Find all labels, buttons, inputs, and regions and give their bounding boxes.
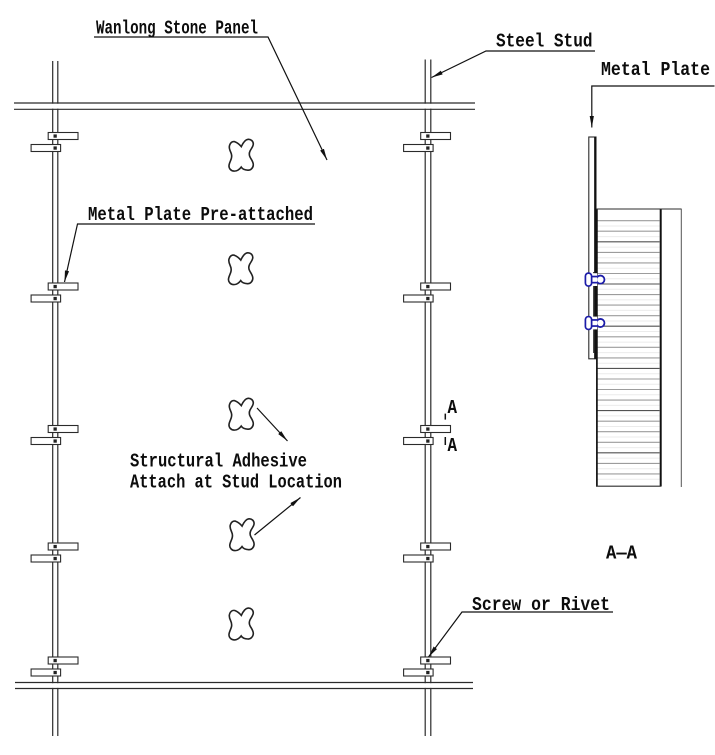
svg-text:Metal Plate Pre-attached: Metal Plate Pre-attached [88,204,313,226]
svg-text:A—A: A—A [606,543,637,565]
svg-text:A: A [448,397,458,419]
svg-text:A: A [448,435,458,457]
svg-text:Wanlong Stone Panel: Wanlong Stone Panel [96,18,258,40]
svg-text:Steel Stud: Steel Stud [496,31,593,53]
svg-text:Attach at Stud Location: Attach at Stud Location [130,472,342,494]
svg-text:Metal Plate: Metal Plate [601,59,710,81]
svg-text:Screw or Rivet: Screw or Rivet [472,594,610,616]
svg-text:Structural Adhesive: Structural Adhesive [130,451,307,473]
